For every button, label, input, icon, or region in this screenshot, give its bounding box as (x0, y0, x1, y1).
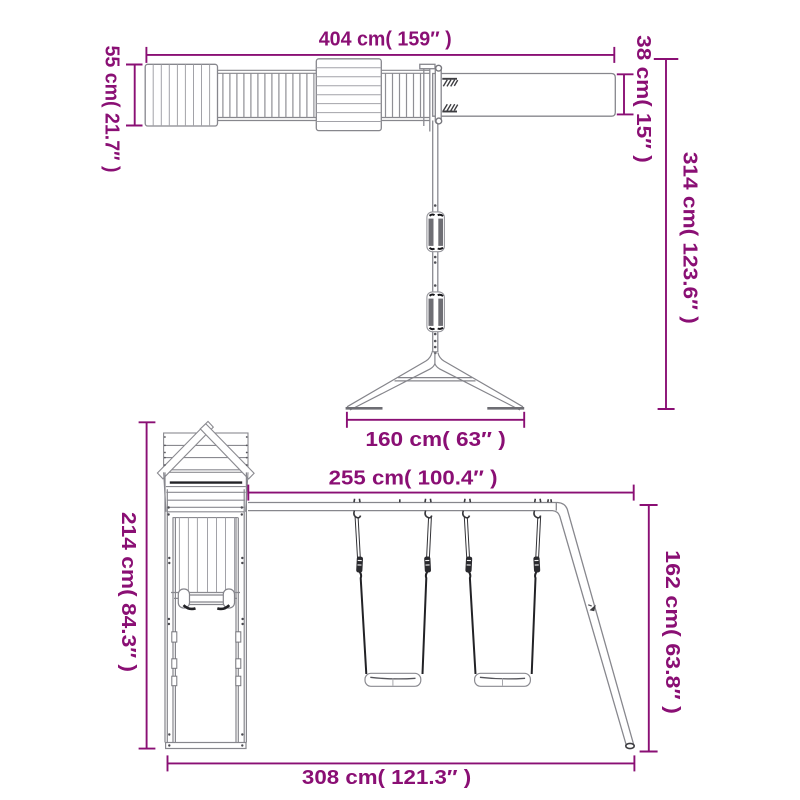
svg-text:160 cm( 63″ ): 160 cm( 63″ ) (365, 429, 505, 451)
svg-text:38 cm( 15″ ): 38 cm( 15″ ) (632, 35, 654, 163)
svg-text:404 cm( 159″ ): 404 cm( 159″ ) (319, 29, 452, 51)
svg-text:255 cm( 100.4″ ): 255 cm( 100.4″ ) (329, 467, 498, 489)
svg-text:314 cm( 123.6″ ): 314 cm( 123.6″ ) (679, 152, 701, 324)
svg-text:162 cm( 63.8″ ): 162 cm( 63.8″ ) (661, 550, 683, 714)
svg-text:214 cm( 84.3″ ): 214 cm( 84.3″ ) (117, 512, 139, 672)
svg-text:308 cm( 121.3″ ): 308 cm( 121.3″ ) (302, 767, 471, 789)
svg-text:55 cm( 21.7″ ): 55 cm( 21.7″ ) (101, 46, 123, 173)
